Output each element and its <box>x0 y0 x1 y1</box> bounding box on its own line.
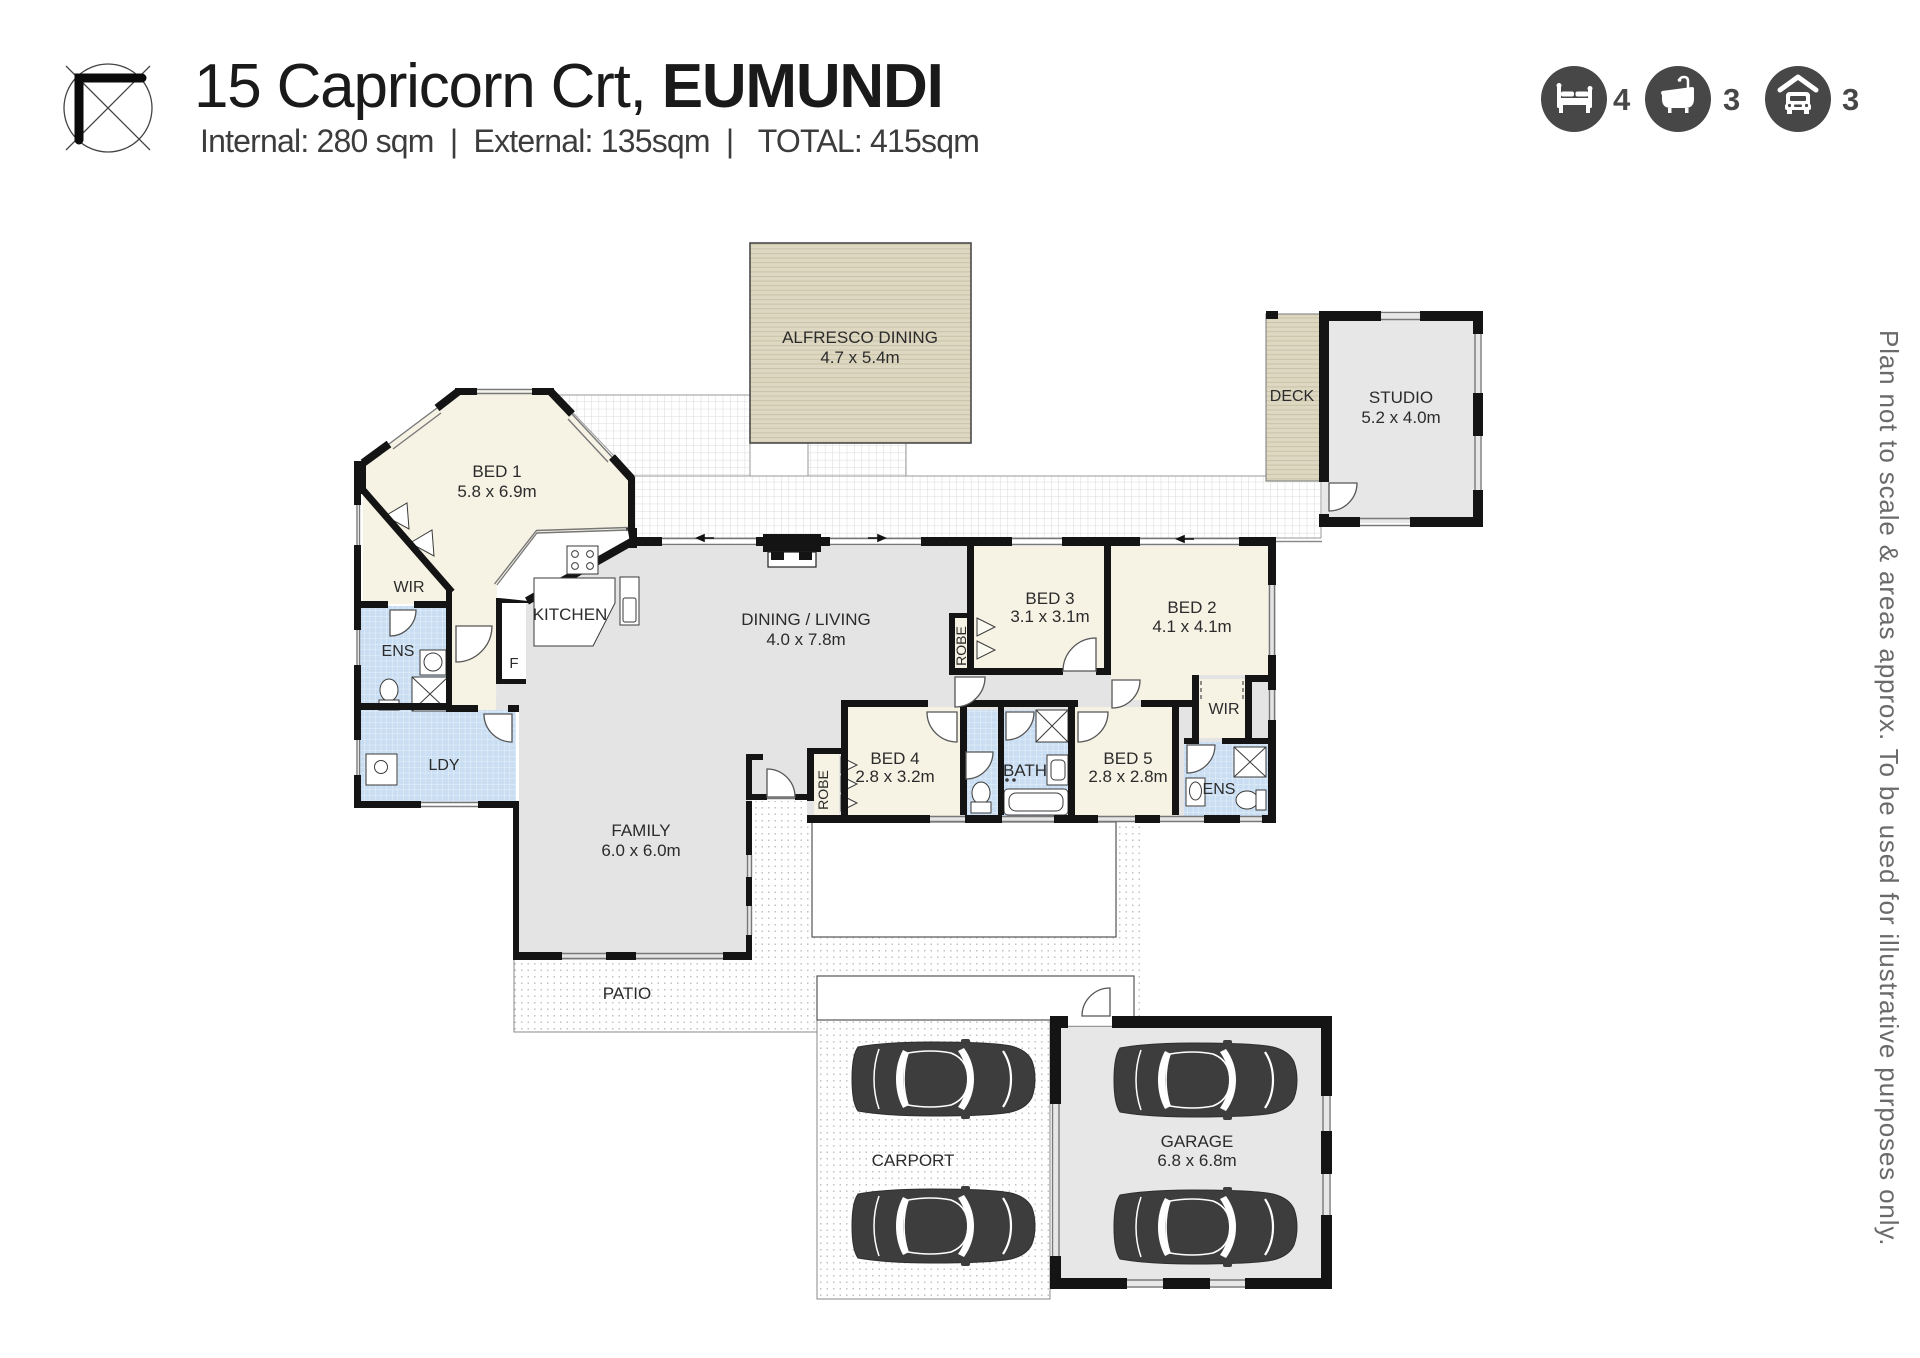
svg-text:4.0 x 7.8m: 4.0 x 7.8m <box>766 630 845 649</box>
svg-text:ROBE: ROBE <box>953 626 969 666</box>
svg-text:DINING / LIVING: DINING / LIVING <box>741 610 870 629</box>
svg-text:4: 4 <box>1613 82 1631 117</box>
svg-text:STUDIO: STUDIO <box>1369 388 1433 407</box>
svg-text:Plan not to scale & areas appr: Plan not to scale & areas approx. To be … <box>1874 330 1904 1246</box>
svg-text:PATIO: PATIO <box>603 984 652 1003</box>
svg-text:15 Capricorn Crt, EUMUNDI: 15 Capricorn Crt, EUMUNDI <box>194 52 943 121</box>
svg-text:LDY: LDY <box>428 757 459 774</box>
svg-text:5.2 x 4.0m: 5.2 x 4.0m <box>1361 408 1440 427</box>
svg-text:ENS: ENS <box>382 643 415 660</box>
svg-text:3: 3 <box>1723 82 1740 117</box>
svg-text:3.1 x 3.1m: 3.1 x 3.1m <box>1010 607 1089 626</box>
svg-text:ENS: ENS <box>1203 781 1236 798</box>
svg-text:6.0 x 6.0m: 6.0 x 6.0m <box>601 841 680 860</box>
svg-text:5.8 x 6.9m: 5.8 x 6.9m <box>457 482 536 501</box>
svg-text:2.8 x 3.2m: 2.8 x 3.2m <box>855 767 934 786</box>
svg-text:ALFRESCO DINING: ALFRESCO DINING <box>782 328 938 347</box>
svg-text:BED 3: BED 3 <box>1025 589 1074 608</box>
svg-text:WIR: WIR <box>1208 701 1239 718</box>
svg-text:BATH: BATH <box>1003 761 1047 780</box>
svg-text:KITCHEN: KITCHEN <box>533 605 608 624</box>
svg-text:4.7 x 5.4m: 4.7 x 5.4m <box>820 348 899 367</box>
svg-text:6.8 x 6.8m: 6.8 x 6.8m <box>1157 1151 1236 1170</box>
svg-text:BED 4: BED 4 <box>870 749 919 768</box>
svg-text:F: F <box>509 655 518 672</box>
svg-text:2.8 x 2.8m: 2.8 x 2.8m <box>1088 767 1167 786</box>
svg-text:BED 2: BED 2 <box>1167 598 1216 617</box>
svg-text:BED 1: BED 1 <box>472 462 521 481</box>
svg-text:CARPORT: CARPORT <box>872 1151 955 1170</box>
svg-text:3: 3 <box>1842 82 1859 117</box>
svg-text:GARAGE: GARAGE <box>1161 1132 1234 1151</box>
svg-text:DECK: DECK <box>1270 388 1315 405</box>
svg-text:ROBE: ROBE <box>815 770 831 810</box>
svg-text:WIR: WIR <box>393 579 424 596</box>
svg-text:FAMILY: FAMILY <box>611 821 670 840</box>
svg-text:Internal: 280 sqm | External: Internal: 280 sqm | External: 135sqm | T… <box>200 123 979 159</box>
svg-text:4.1 x 4.1m: 4.1 x 4.1m <box>1152 617 1231 636</box>
svg-text:BED 5: BED 5 <box>1103 749 1152 768</box>
